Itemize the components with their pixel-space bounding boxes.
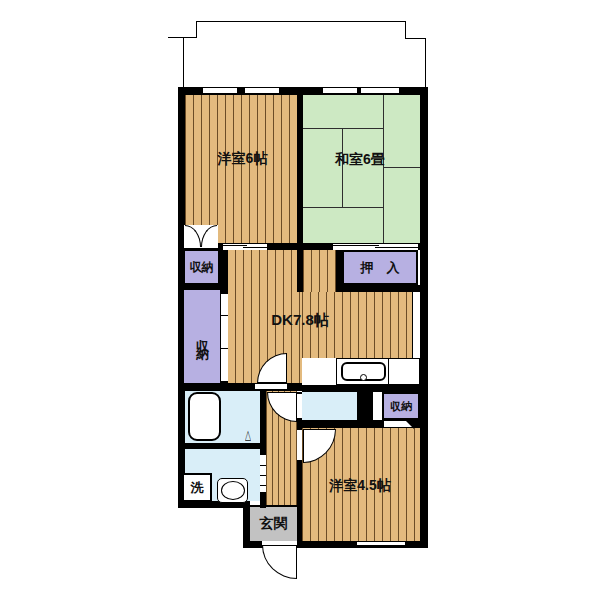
kitchen-counter-side: [412, 292, 420, 358]
closet-left: 収納: [182, 288, 222, 385]
genkan-label: 玄関: [260, 515, 288, 533]
washroom-folding-door: [260, 455, 266, 492]
wall-oshiire-bottom: [336, 285, 420, 292]
window: [245, 88, 279, 94]
washroom-door-tick: [260, 485, 266, 486]
yoshitsu45-door-opening: [297, 430, 302, 460]
wall-bath-washroom: [178, 443, 266, 449]
window: [203, 88, 237, 94]
floor-plan: 収納 収納 押 入 収納 △ 洗 洋室6帖 和室6畳 DK7.8帖 洋室4.5: [0, 0, 600, 600]
washroom-door-tick: [260, 465, 266, 466]
wall-wc-right: [357, 392, 373, 420]
wc-door-opening: [297, 394, 302, 418]
washroom-door-tick: [260, 475, 266, 476]
closet-east: 収納: [382, 392, 420, 420]
room-dk-label: DK7.8帖: [252, 311, 348, 330]
room-dk-floor-nook: [303, 250, 338, 292]
closet-left-label: 収納: [193, 328, 211, 346]
closet-left-door-tick: [221, 348, 228, 349]
room-yoshitsu6-label: 洋室6帖: [195, 150, 290, 168]
kitchen-counter-divider: [388, 358, 389, 385]
balcony-rail-step-left: [196, 21, 197, 38]
closet-upper-label: 収納: [190, 259, 214, 276]
fusuma-leaf: [375, 247, 418, 248]
oshiire-label: 押 入: [361, 259, 400, 277]
tatami-seam: [303, 207, 384, 208]
wc-room-floor: [302, 392, 357, 420]
sliding-door-leaf: [223, 245, 247, 246]
toilet-bowl: [221, 481, 245, 500]
closet-left-door: [221, 294, 228, 381]
window-south: [357, 542, 405, 546]
fusuma-leaf: [333, 245, 379, 246]
balcony-divider-left: [168, 37, 197, 38]
genkan-label-box: 玄関: [250, 507, 297, 541]
bathroom-door-mark: △: [245, 427, 251, 442]
tatami-seam: [303, 128, 384, 129]
room-yoshitsu45-label: 洋室4.5帖: [310, 477, 410, 495]
wall-kitchen-bottom: [302, 385, 420, 392]
balcony-rail-left: [183, 37, 184, 88]
washing-machine-pan: 洗: [182, 473, 212, 502]
balcony-rail-right: [425, 38, 426, 88]
entrance-door-arc: [262, 545, 297, 579]
wall-right: [420, 87, 428, 548]
dk-door-opening: [255, 384, 287, 389]
wall-rooms-divider: [297, 95, 303, 292]
window: [323, 88, 357, 94]
faucet-icon: [360, 374, 367, 381]
window: [361, 88, 399, 94]
balcony-rail-top: [196, 21, 406, 22]
room-washitsu6-label: 和室6畳: [310, 151, 410, 169]
room-washitsu6-floor: [303, 95, 420, 243]
closet-east-label: 収納: [390, 399, 412, 414]
laundry-label: 洗: [191, 479, 204, 497]
oshiire-closet: 押 入: [342, 250, 418, 285]
closet-left-door-tick: [221, 315, 228, 316]
balcony-rail-step-right2: [405, 38, 426, 39]
balcony-rail-step-right: [405, 21, 406, 39]
room-yoshitsu6-floor: [185, 95, 297, 243]
bathtub: [188, 392, 221, 441]
closet-upper: 収納: [183, 249, 220, 285]
sliding-door-leaf: [243, 247, 267, 248]
tatami-seam: [383, 95, 384, 243]
closet-east-door-mark: [406, 421, 414, 429]
